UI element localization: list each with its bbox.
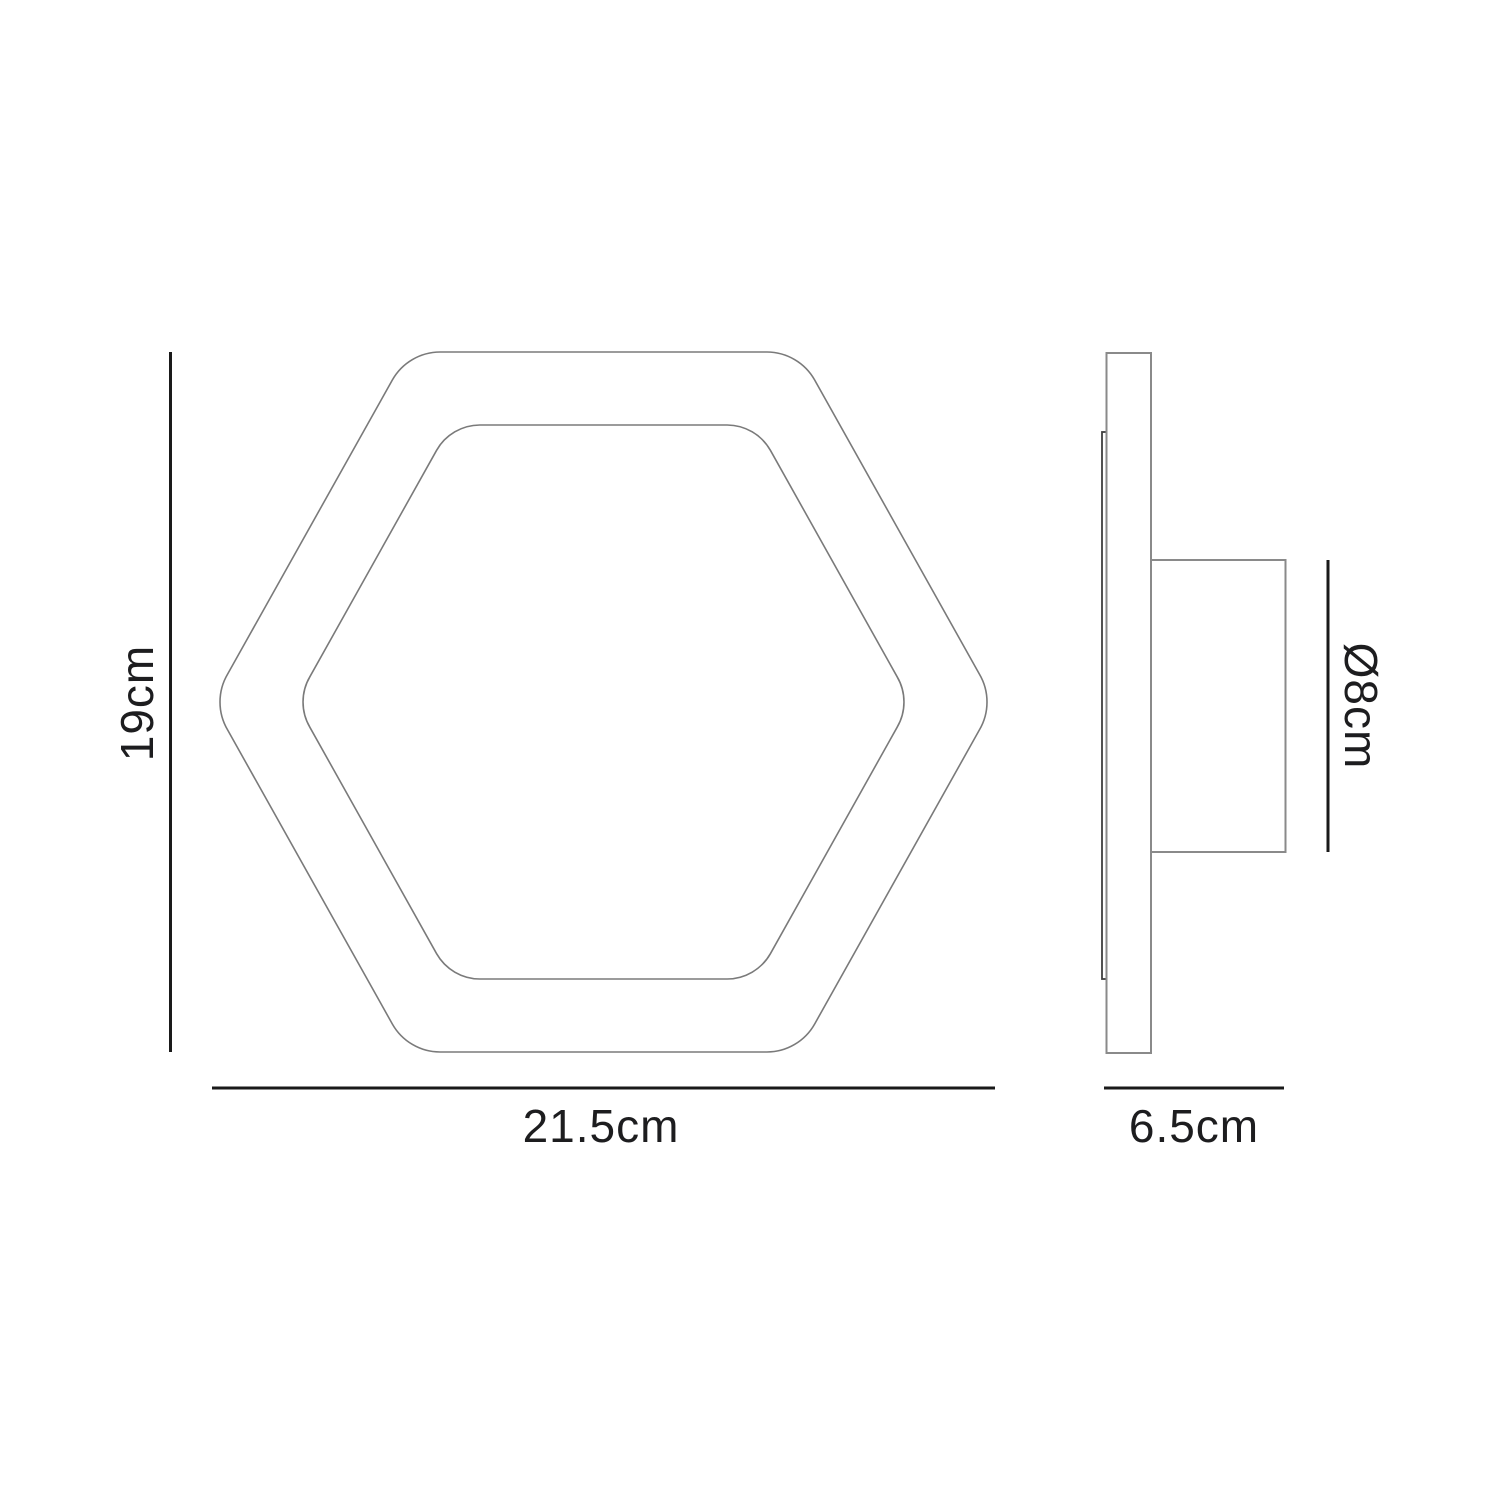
front-view [220, 352, 987, 1052]
side-view [1102, 353, 1286, 1053]
dimension-diagram: 19cm 21.5cm 6.5cm Ø8cm [0, 0, 1500, 1500]
diagram-canvas: 19cm 21.5cm 6.5cm Ø8cm [0, 0, 1500, 1500]
side-view-panel [1107, 353, 1152, 1053]
width-dimension-label: 21.5cm [523, 1100, 680, 1152]
diameter-dimension-label: Ø8cm [1335, 643, 1387, 770]
depth-dimension-label: 6.5cm [1129, 1100, 1259, 1152]
side-view-driver-box [1151, 560, 1286, 852]
front-view-outer-hexagon [220, 352, 987, 1052]
front-view-inner-hexagon [303, 425, 904, 979]
height-dimension-label: 19cm [111, 645, 163, 761]
